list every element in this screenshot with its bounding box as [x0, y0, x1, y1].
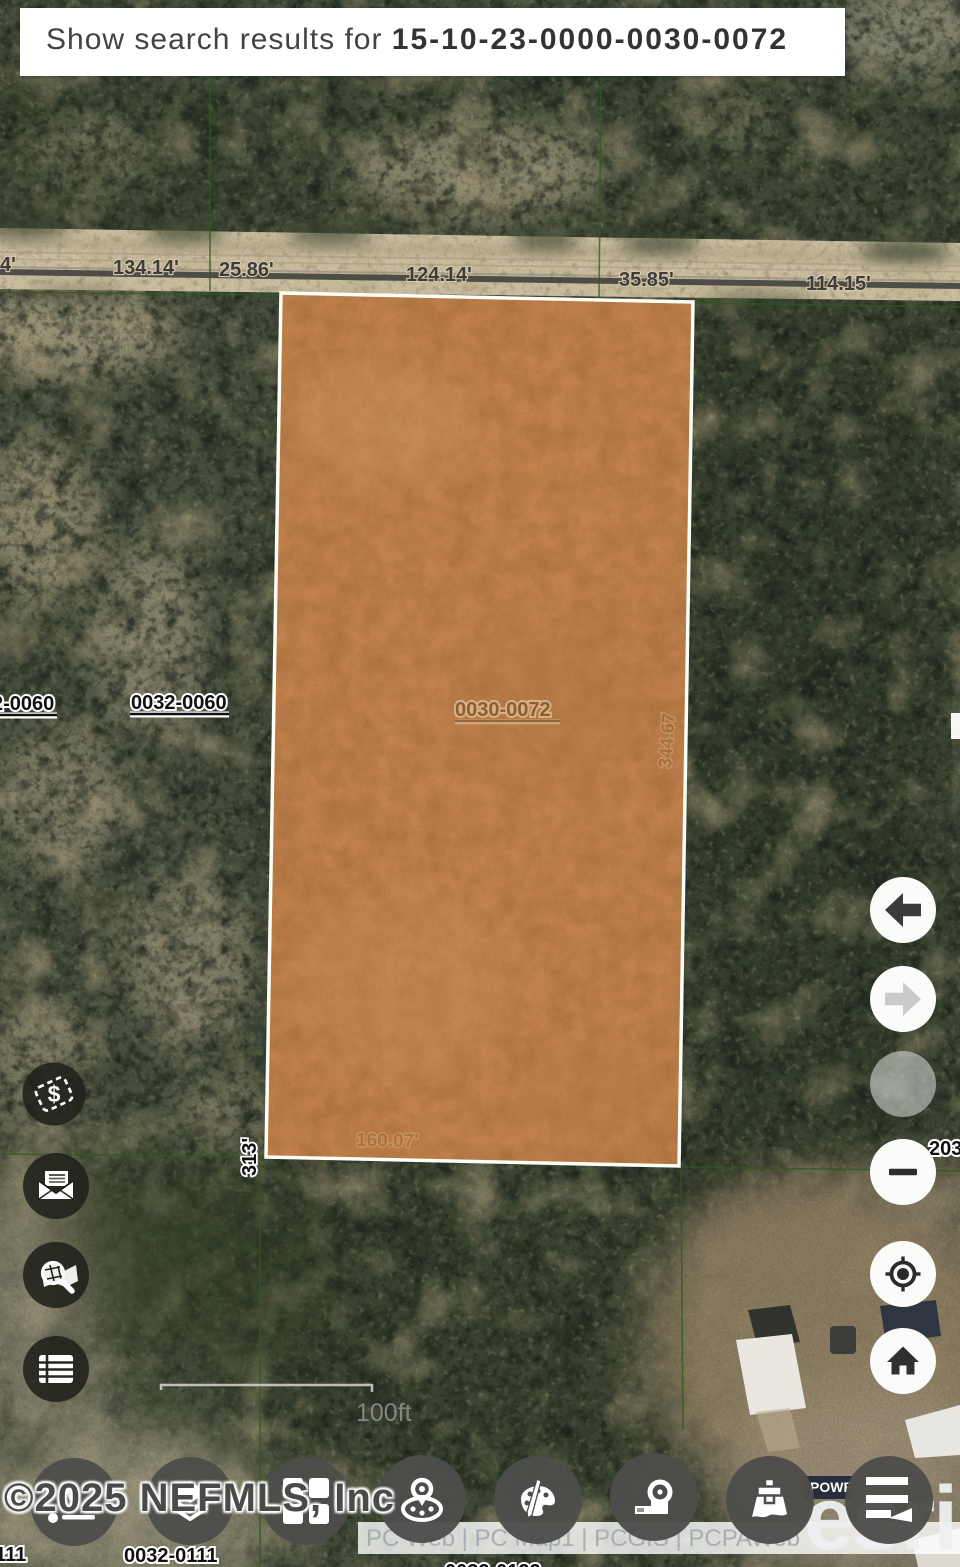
svg-text:$: $ [48, 1081, 61, 1107]
